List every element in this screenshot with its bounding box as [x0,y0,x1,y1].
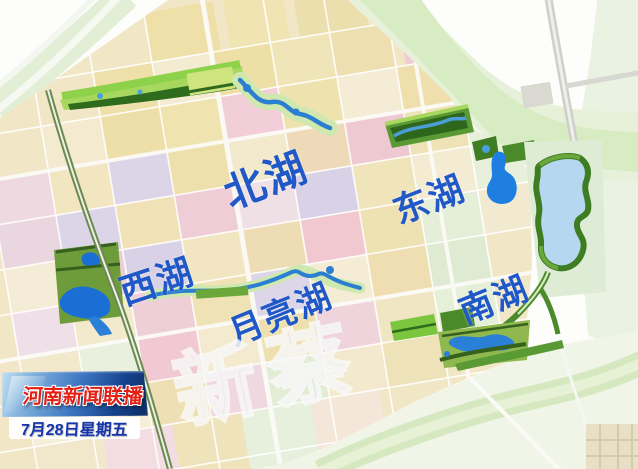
southeast-district [586,424,638,469]
broadcast-date-banner: 7月28日星期五 [9,417,140,439]
broadcast-date: 7月28日星期五 [20,416,128,440]
news-channel-banner: 河南新闻联播 [2,371,148,417]
channel-title: 河南新闻联播 [22,380,145,409]
tv-frame: 北湖 东湖 西湖 月亮湖 南湖 新蔡 河南新闻联播 7月28日星期五 [0,0,638,469]
